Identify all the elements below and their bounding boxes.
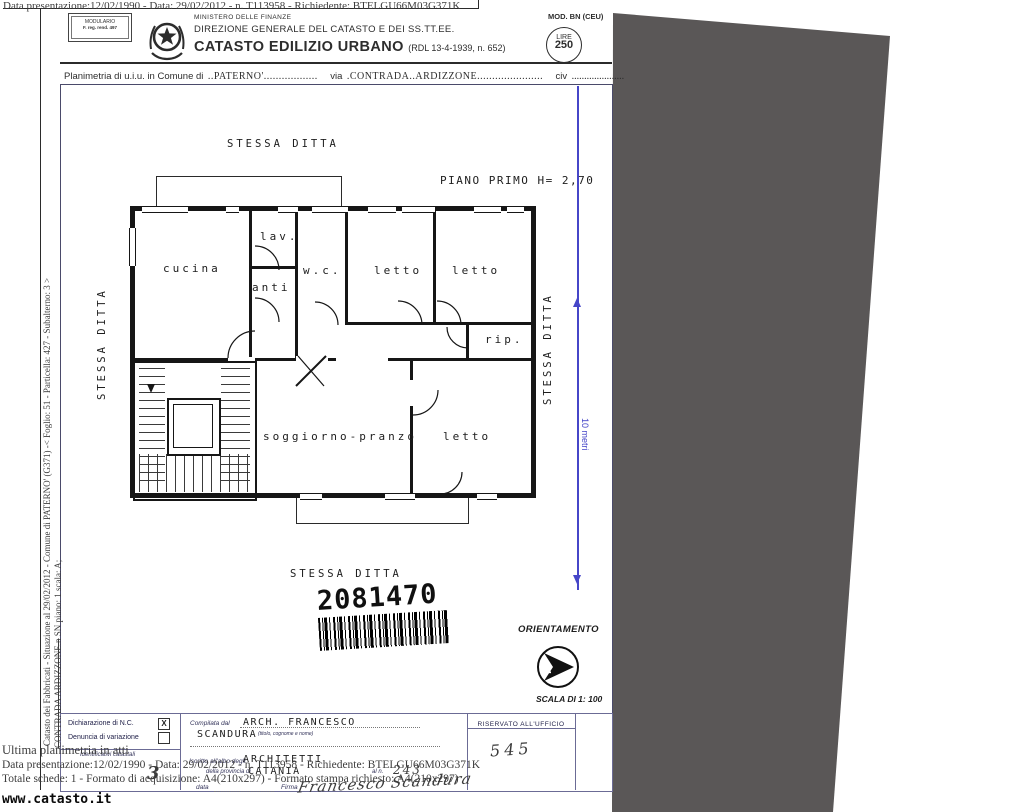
room-label-rip: rip. [485, 333, 524, 346]
top-presentation-line: Data presentazione:12/02/1990 - Data: 29… [3, 0, 460, 12]
compilata-value2: SCANDURA [197, 729, 257, 740]
mod-bn-label: MOD. BN (CEU) [548, 12, 603, 21]
form-divider [575, 713, 576, 790]
intro-label-civ: civ [556, 71, 568, 82]
ministry-line: MINISTERO DELLE FINANZE [194, 14, 505, 21]
room-label-wc: w.c. [303, 264, 342, 277]
room-label-cucina: cucina [163, 262, 221, 275]
side-cadastre-line: Catasto dei Fabbricati - Situazione al 2… [42, 278, 52, 746]
header-rule [60, 62, 612, 64]
north-compass-icon: N [536, 645, 580, 689]
compilata-label: Compilata dal [190, 720, 230, 727]
dotted-line [190, 746, 440, 747]
lire-stamp-value: 250 [547, 41, 581, 50]
lire-stamp: LIRE 250 [546, 27, 582, 63]
top-rule-end [478, 0, 479, 9]
dotted-line [240, 727, 420, 728]
page-left-border [40, 8, 41, 790]
side-address-struck: CONTRADA ARDIZZONE.n [53, 639, 63, 749]
firma-label: Firma [281, 784, 298, 791]
orientation-label: ORIENTAMENTO [518, 624, 599, 635]
north-letter: N [539, 665, 554, 674]
bottom-format-line: Totale schede: 1 - Formato di acquisizio… [2, 773, 459, 785]
compilata-note: (titolo, cognome e nome) [258, 731, 313, 737]
intro-label-via: via [330, 71, 342, 82]
side-address-rest: SN piano: 1 scala: A; [53, 560, 63, 639]
direction-line: DIREZIONE GENERALE DEL CATASTO E DEI SS.… [194, 24, 505, 35]
intro-line: Planimetria di u.i.u. in Comune di ..PAT… [64, 66, 609, 84]
comune-value: ..PATERNO'.................. [208, 71, 318, 82]
bottom-presentation-line: Data presentazione:12/02/1990 - Data: 29… [2, 759, 480, 771]
dotted-line [214, 791, 274, 792]
data-label: data [196, 784, 209, 791]
check1-box: X [158, 718, 170, 730]
room-label-letto2: letto [452, 264, 500, 277]
modulario-ref: F. reg. rend. 497 [69, 25, 131, 30]
check1-label: Dichiarazione di N.C. [68, 720, 134, 727]
document-title: CATASTO EDILIZIO URBANO [194, 39, 404, 55]
room-label-anti: anti [252, 281, 291, 294]
scale-label: SCALA DI 1: 100 [536, 694, 602, 704]
italy-emblem-icon [146, 13, 188, 61]
side-address-line: CONTRADA ARDIZZONE.n SN piano: 1 scala: … [53, 560, 63, 748]
ministry-block: MINISTERO DELLE FINANZE DIREZIONE GENERA… [194, 14, 505, 56]
riservato-label: RISERVATO ALL'UFFICIO [477, 721, 564, 728]
via-value: .CONTRADA..ARDIZZONE....................… [347, 71, 543, 82]
civ-value: ..................... [572, 71, 625, 82]
room-label-letto3: letto [443, 430, 491, 443]
check2-label: Denuncia di variazione [68, 734, 139, 741]
document-title-ref: (RDL 13-4-1939, n. 652) [408, 43, 505, 53]
riservato-header: RISERVATO ALL'UFFICIO [467, 713, 575, 729]
watermark-link: www.catasto.it [2, 792, 112, 807]
intro-label-comune: Planimetria di u.i.u. in Comune di [64, 71, 203, 82]
modulario-box: MODULARIO F. reg. rend. 497 [68, 13, 132, 42]
room-label-lav: lav. [260, 230, 299, 243]
room-label-soggiorno: soggiorno-pranzo [263, 430, 417, 443]
barcode-block: 2081470 [316, 578, 450, 651]
check2-box [158, 732, 170, 744]
room-label-letto1: letto [374, 264, 422, 277]
riservato-value: 545 [489, 739, 533, 761]
ultima-planimetria-line: Ultima planimetria in atti [2, 743, 129, 758]
